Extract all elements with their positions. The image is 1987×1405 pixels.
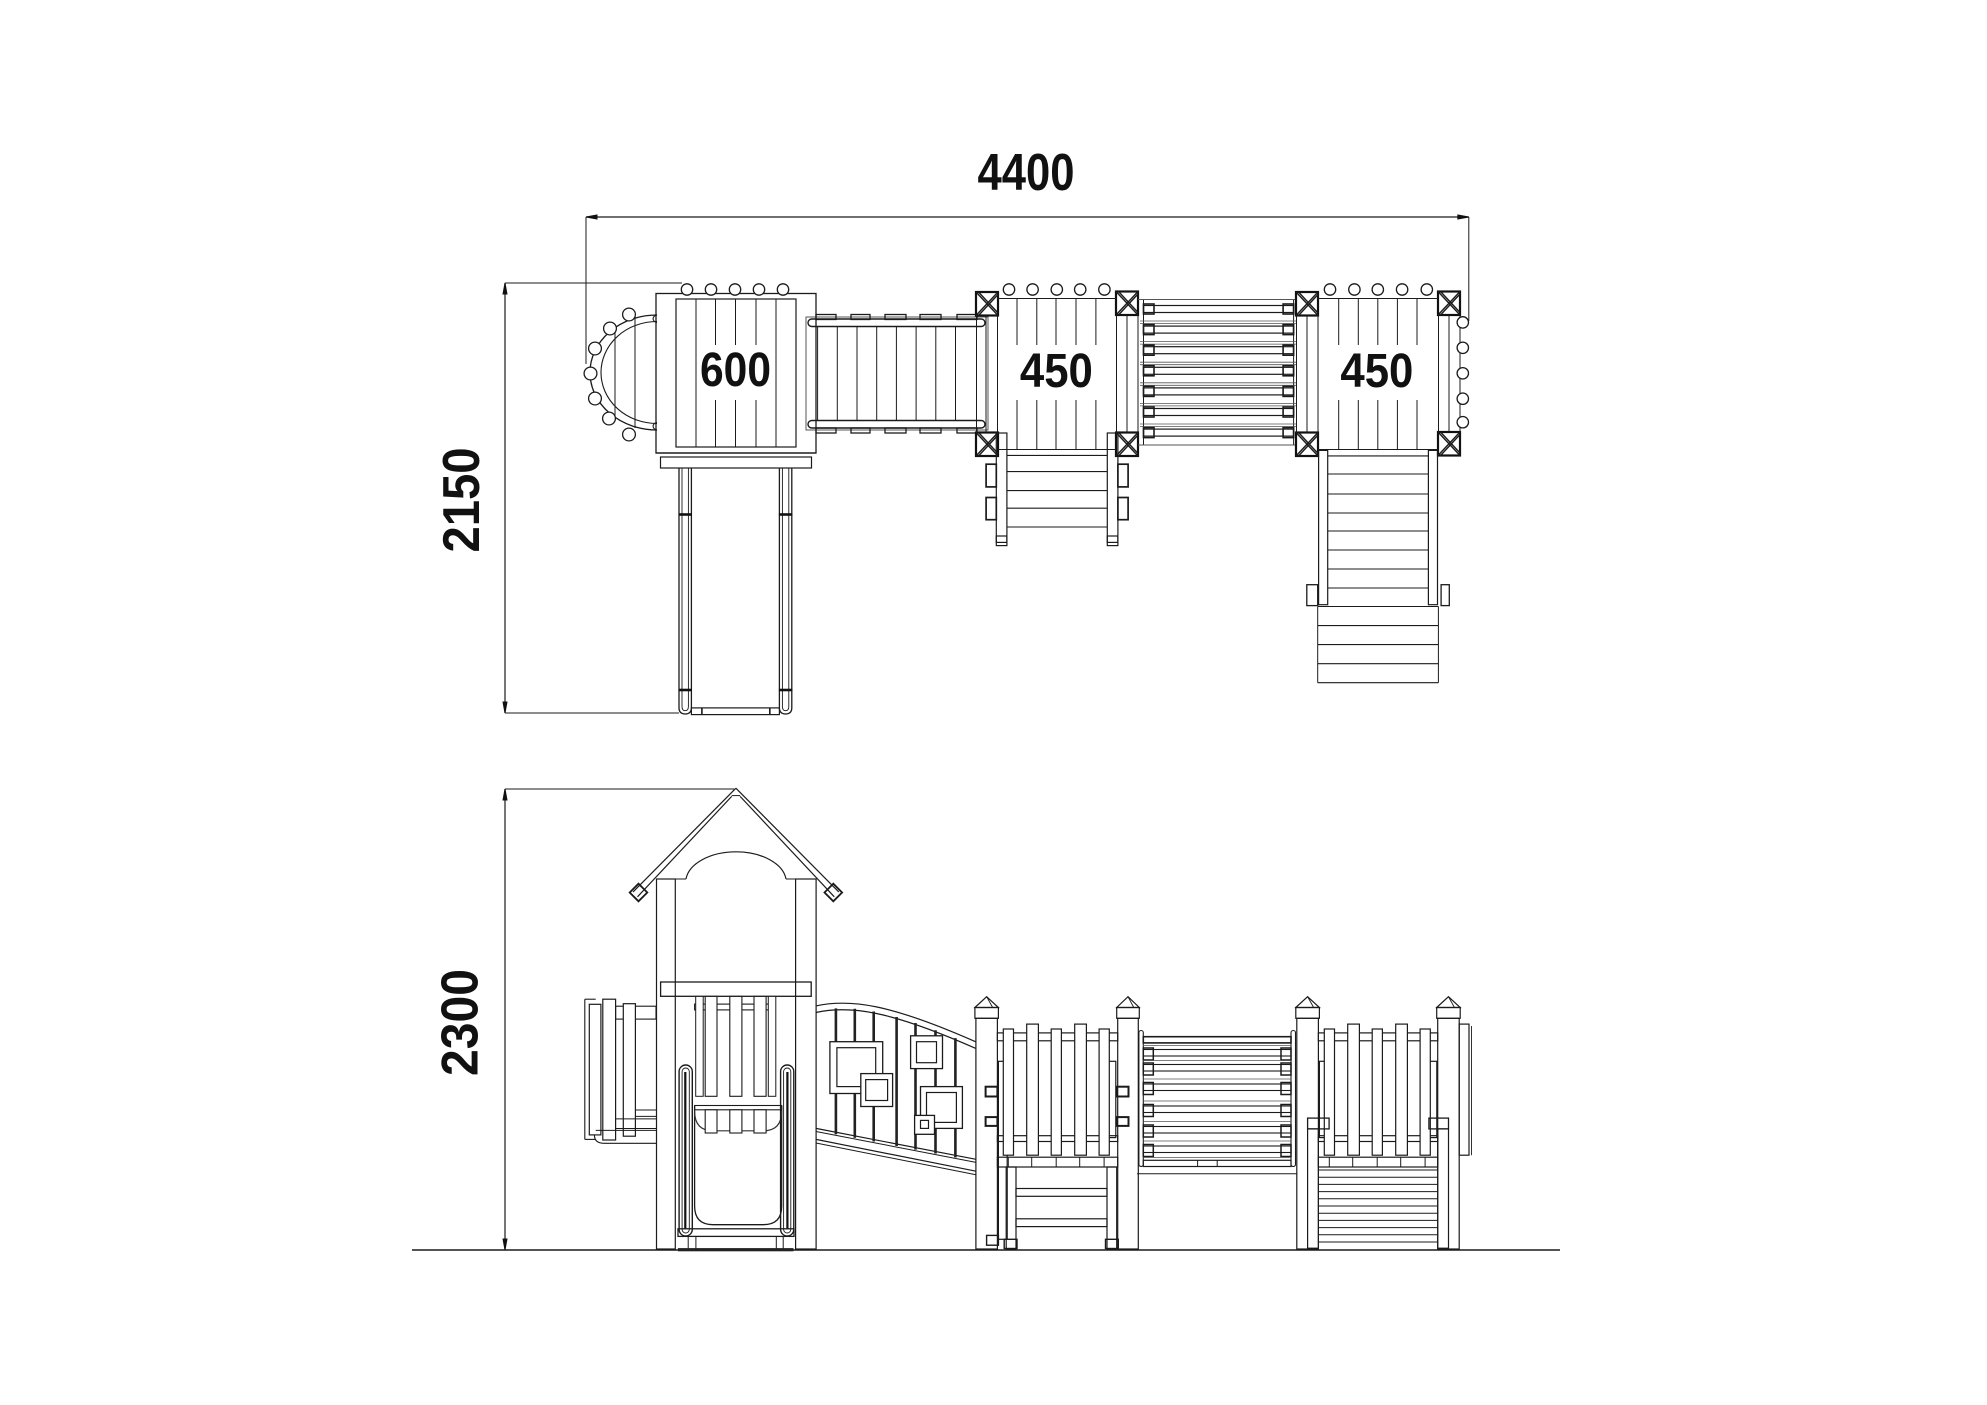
svg-text:2300: 2300	[432, 969, 490, 1076]
svg-text:600: 600	[700, 344, 771, 397]
svg-text:2150: 2150	[433, 448, 491, 553]
svg-text:4400: 4400	[978, 144, 1075, 202]
svg-text:450: 450	[1340, 345, 1413, 398]
svg-text:450: 450	[1020, 345, 1093, 398]
